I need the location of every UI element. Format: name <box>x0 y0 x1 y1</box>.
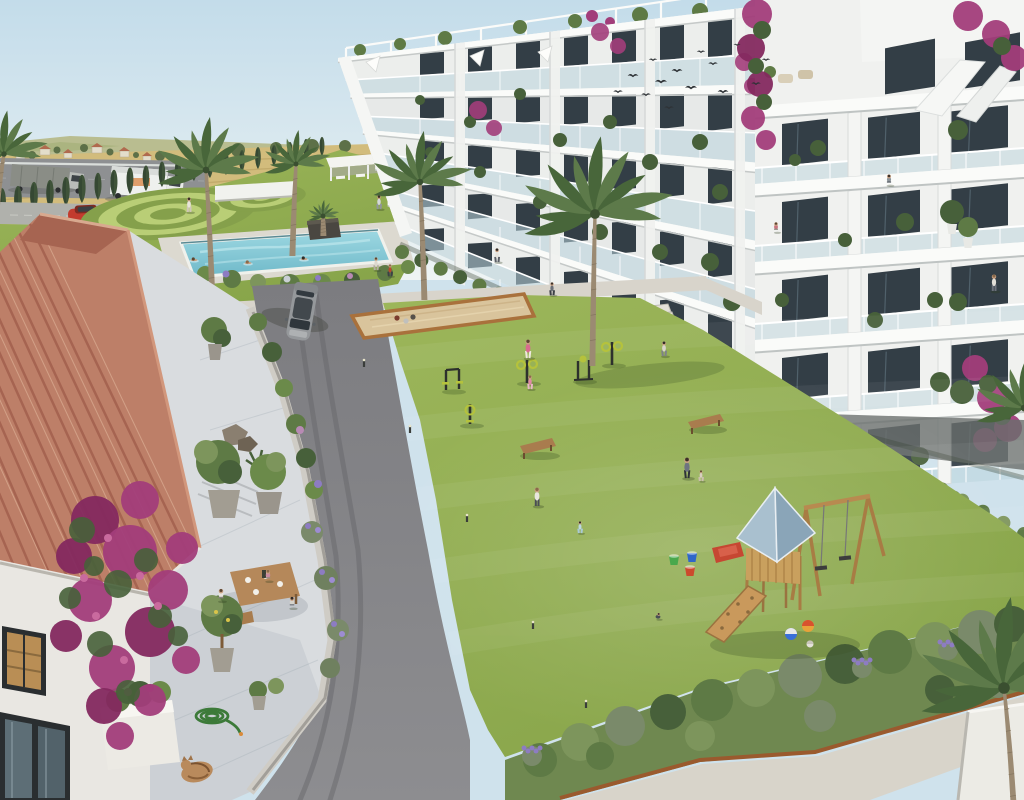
architectural-rendering: Aerial rendering of a Mediterranean resi… <box>0 0 1024 800</box>
bollard-light <box>532 621 535 629</box>
house-window <box>2 626 46 696</box>
toy-bucket <box>685 565 695 576</box>
scene-canvas <box>0 0 1024 800</box>
bollard-light <box>409 425 412 433</box>
bocce-ball <box>410 314 415 319</box>
bocce-ball <box>403 318 408 323</box>
bollard-light <box>363 359 366 367</box>
bollard-light <box>585 700 588 708</box>
toy-bucket <box>669 554 679 565</box>
toy-ball <box>785 628 797 640</box>
toy-bucket <box>687 551 697 562</box>
house-doors <box>0 712 70 800</box>
bocce-ball <box>394 315 399 320</box>
toy-ball <box>807 641 814 648</box>
toy-ball <box>802 620 814 632</box>
bollard-light <box>466 514 469 522</box>
